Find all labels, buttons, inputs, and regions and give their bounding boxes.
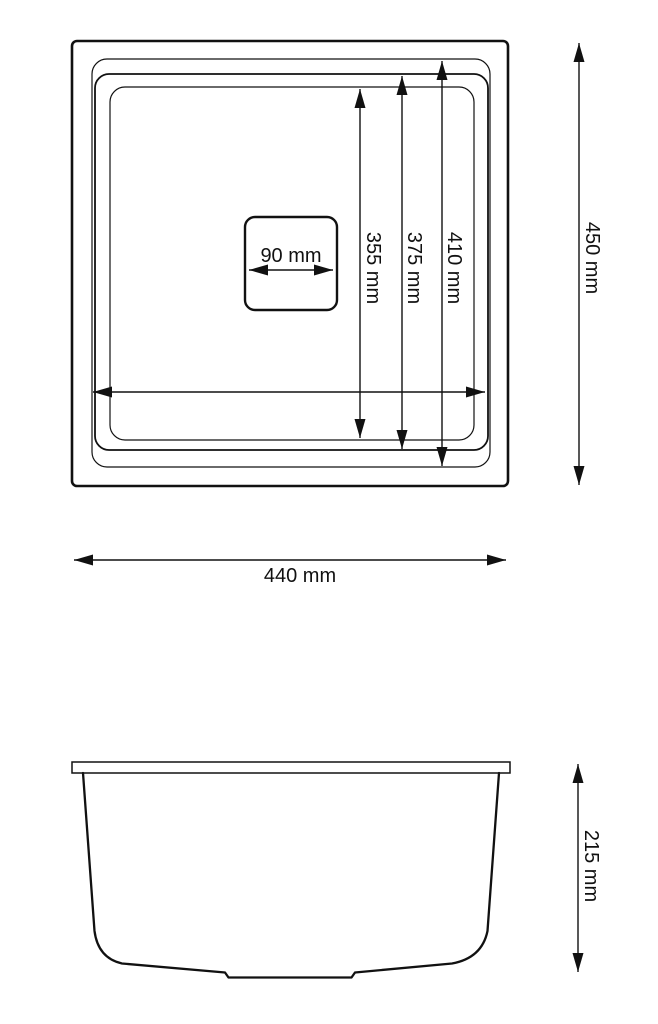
side-view: 215 mm: [72, 762, 602, 978]
dim-label-drain-width: 90 mm: [260, 245, 321, 267]
dim-label-mid-rim-depth: 375 mm: [403, 232, 425, 304]
technical-drawing-page: 90 mm 355 mm 375 mm 410 mm 450 mm 440 mm: [0, 0, 658, 1024]
side-view-rim-flange: [72, 762, 510, 773]
dim-label-overall-depth: 450 mm: [581, 222, 603, 294]
sink-dimension-drawing: 90 mm 355 mm 375 mm 410 mm 450 mm 440 mm: [0, 0, 658, 1024]
dim-label-outer-rim-depth: 410 mm: [443, 232, 465, 304]
dim-label-inner-bowl-depth: 355 mm: [362, 232, 384, 304]
side-view-bowl-profile: [83, 773, 499, 978]
dim-label-overall-height: 215 mm: [580, 830, 602, 902]
top-view: 90 mm 355 mm 375 mm 410 mm 450 mm 440 mm: [72, 41, 603, 587]
dim-label-overall-width: 440 mm: [264, 565, 336, 587]
